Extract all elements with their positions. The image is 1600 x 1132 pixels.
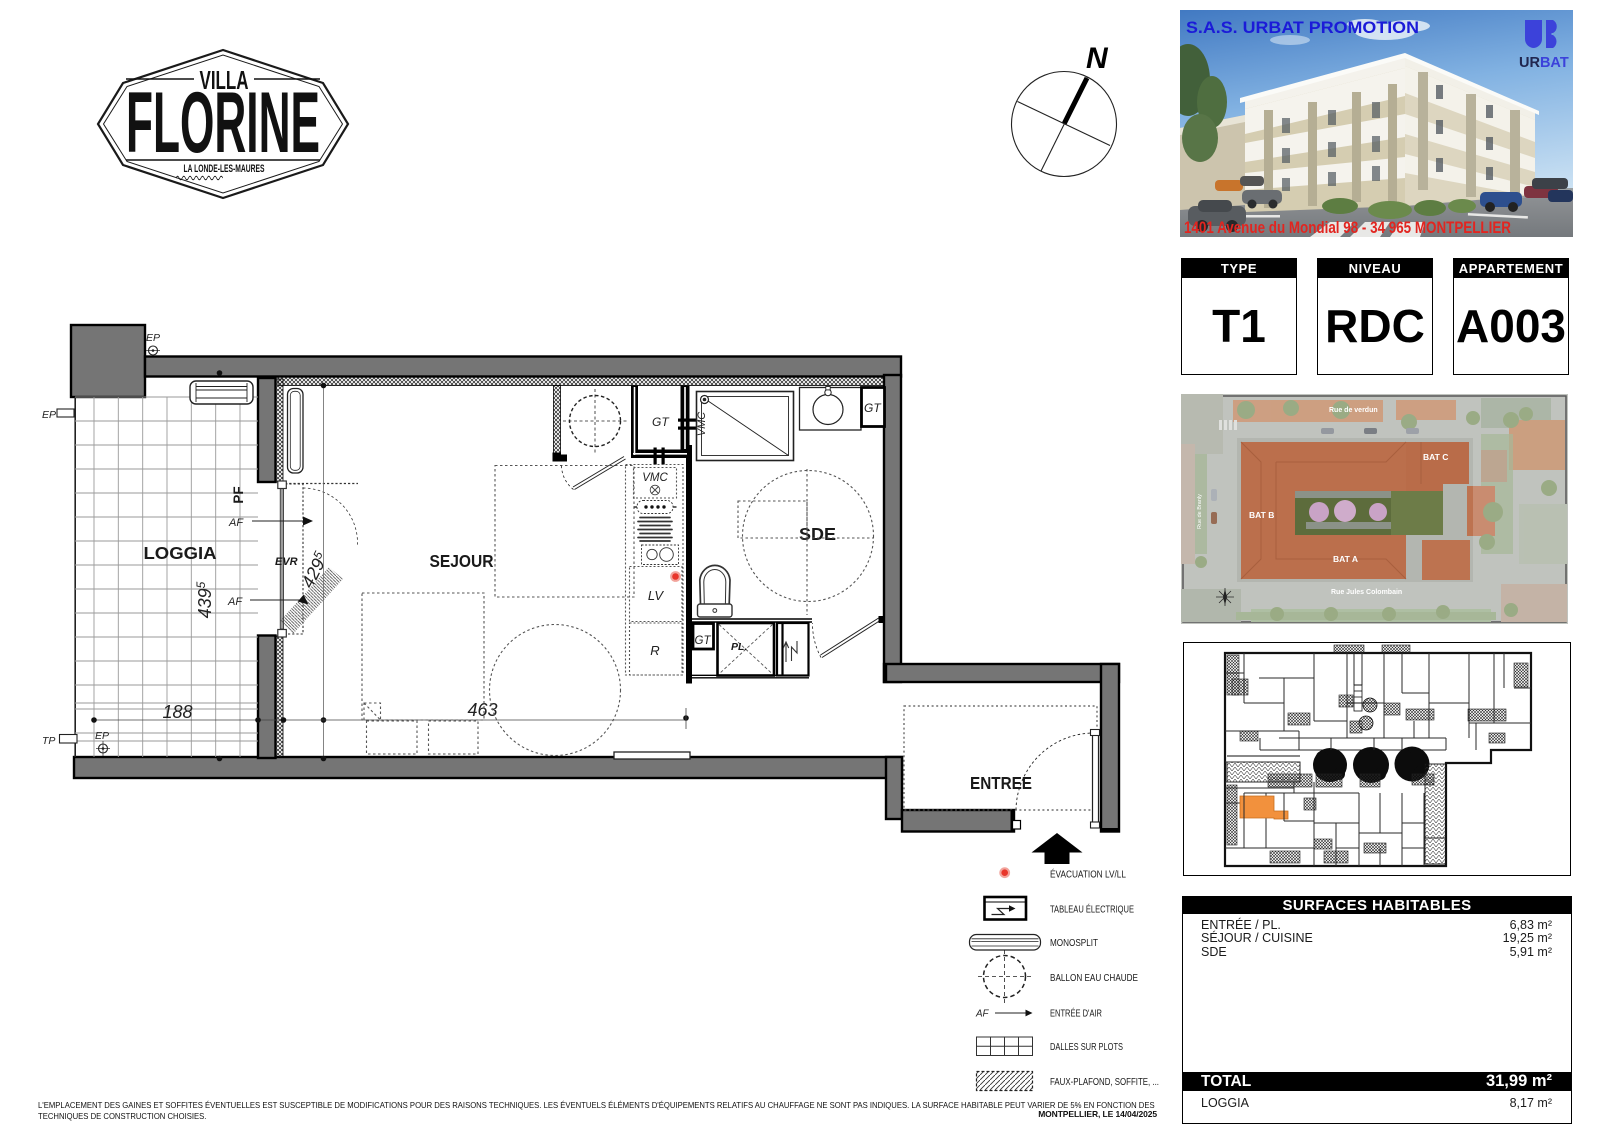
svg-text:EVR: EVR [275,556,298,568]
svg-text:EP: EP [42,409,56,421]
svg-text:ENTRÉE D'AIR: ENTRÉE D'AIR [1050,1009,1102,1020]
svg-text:GT: GT [652,415,670,429]
svg-text:R: R [650,643,659,658]
svg-text:AF: AF [975,1009,990,1020]
svg-text:GT: GT [864,401,882,415]
svg-text:188: 188 [162,702,192,722]
svg-text:BAT C: BAT C [1423,452,1448,462]
svg-text:PL.: PL. [731,641,747,653]
svg-text:BALLON EAU CHAUDE: BALLON EAU CHAUDE [1050,973,1138,984]
svg-text:LOGGIA: LOGGIA [144,543,217,563]
svg-text:AF: AF [227,596,243,608]
svg-text:4395: 4395 [194,581,215,618]
svg-text:463: 463 [467,700,497,720]
svg-text:DALLES SUR PLOTS: DALLES SUR PLOTS [1050,1042,1123,1053]
svg-text:Rue de verdun: Rue de verdun [1329,407,1378,414]
svg-text:SDE: SDE [799,524,836,544]
svg-text:EP: EP [95,730,109,742]
svg-text:MONOSPLIT: MONOSPLIT [1050,938,1098,949]
svg-text:ENTREE: ENTREE [970,773,1032,793]
svg-text:GT: GT [695,635,712,647]
svg-text:PF: PF [231,486,246,503]
svg-text:Rue Jules Colombain: Rue Jules Colombain [1331,589,1402,596]
svg-text:VMC: VMC [696,412,708,437]
svg-text:1401 Avenue du Mondial 98 - 34: 1401 Avenue du Mondial 98 - 34 965 MONTP… [1184,219,1511,237]
svg-text:S.A.S. URBAT PROMOTION: S.A.S. URBAT PROMOTION [1186,19,1419,37]
svg-text:URBAT: URBAT [1519,55,1569,71]
svg-text:BAT B: BAT B [1249,510,1274,520]
svg-text:SEJOUR: SEJOUR [430,551,494,571]
svg-text:FAUX-PLAFOND, SOFFITE, ...: FAUX-PLAFOND, SOFFITE, ... [1050,1077,1159,1088]
svg-text:TP: TP [42,735,55,747]
svg-text:AF: AF [228,517,244,529]
svg-text:LV: LV [648,588,665,603]
svg-text:VMC: VMC [642,472,668,484]
svg-text:BAT A: BAT A [1333,554,1358,564]
svg-text:ÉVACUATION LV/LL: ÉVACUATION LV/LL [1050,870,1126,881]
svg-text:TABLEAU ÉLECTRIQUE: TABLEAU ÉLECTRIQUE [1050,905,1134,916]
svg-text:EP: EP [146,332,160,344]
